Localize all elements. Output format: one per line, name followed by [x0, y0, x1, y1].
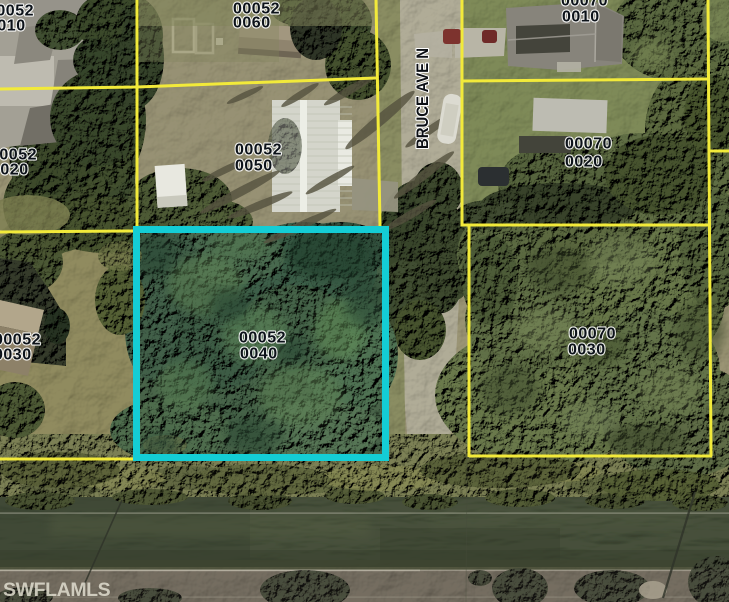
svg-text:0010: 0010 — [0, 18, 26, 35]
svg-text:0020: 0020 — [0, 162, 29, 179]
svg-text:00070: 00070 — [565, 136, 612, 153]
svg-text:0010: 0010 — [562, 9, 600, 26]
svg-text:SWFLAMLS: SWFLAMLS — [3, 579, 111, 601]
svg-text:BRUCE AVE N: BRUCE AVE N — [413, 48, 432, 149]
svg-text:0030: 0030 — [568, 342, 606, 359]
svg-text:0030: 0030 — [0, 347, 32, 364]
svg-text:00070: 00070 — [569, 326, 616, 343]
svg-text:0050: 0050 — [235, 158, 273, 175]
svg-text:00052: 00052 — [235, 142, 282, 159]
svg-text:0060: 0060 — [233, 15, 271, 32]
svg-text:00052: 00052 — [239, 330, 286, 347]
svg-text:0020: 0020 — [565, 154, 603, 171]
svg-text:0040: 0040 — [240, 346, 278, 363]
